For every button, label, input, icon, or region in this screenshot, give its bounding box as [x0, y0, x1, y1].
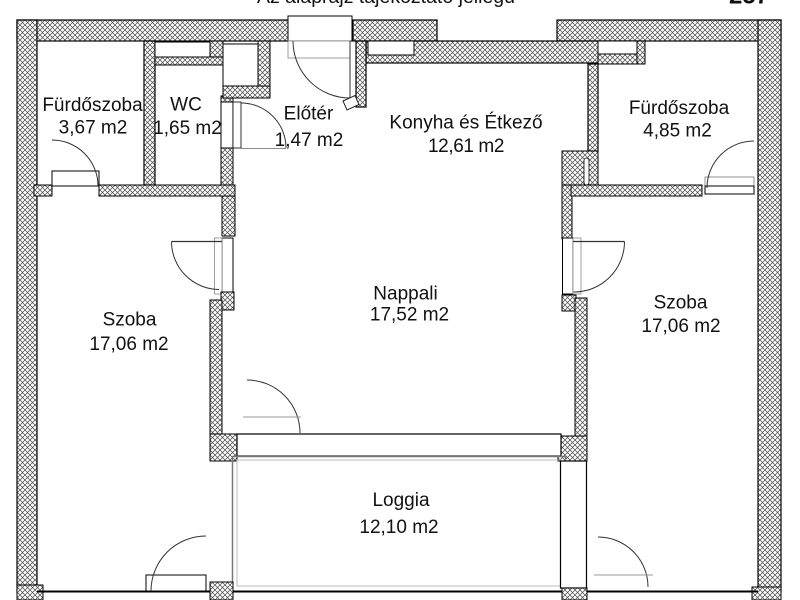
svg-text:Szoba: Szoba [654, 293, 708, 314]
svg-text:17,06 m2: 17,06 m2 [641, 316, 720, 337]
svg-text:12,10 m2: 12,10 m2 [359, 517, 438, 538]
svg-text:257: 257 [729, 0, 769, 10]
svg-text:Loggia: Loggia [372, 490, 429, 511]
svg-text:Az alaprajz tájékoztató jelleg: Az alaprajz tájékoztató jellegű [257, 0, 515, 8]
svg-text:17,06 m2: 17,06 m2 [89, 334, 168, 355]
svg-text:1,47 m2: 1,47 m2 [275, 130, 344, 151]
svg-text:Konyha és Étkező: Konyha és Étkező [389, 113, 542, 134]
svg-text:17,52 m2: 17,52 m2 [370, 305, 449, 326]
svg-text:1,65 m2: 1,65 m2 [153, 118, 222, 139]
svg-text:3,67 m2: 3,67 m2 [59, 118, 128, 139]
svg-text:Fürdőszoba: Fürdőszoba [629, 98, 730, 119]
svg-text:WC: WC [170, 95, 202, 116]
svg-text:Fürdőszoba: Fürdőszoba [42, 95, 143, 116]
svg-text:12,61 m2: 12,61 m2 [428, 136, 504, 157]
svg-text:4,85 m2: 4,85 m2 [643, 121, 712, 142]
svg-text:Előtér: Előtér [284, 104, 334, 125]
svg-text:Nappali: Nappali [373, 284, 437, 305]
svg-text:Szoba: Szoba [103, 310, 157, 331]
